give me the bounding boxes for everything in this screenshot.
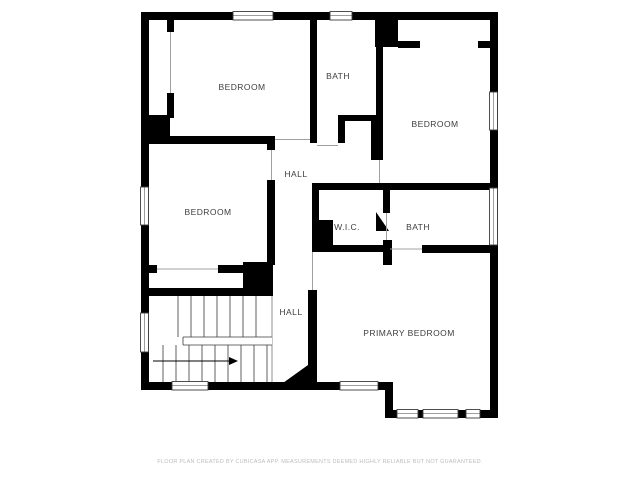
room-label-bedroom-top-right: BEDROOM bbox=[411, 119, 458, 129]
room-label-hall-lower: HALL bbox=[279, 307, 302, 317]
room-label-primary-bedroom: PRIMARY BEDROOM bbox=[363, 328, 454, 338]
room-label-hall-upper: HALL bbox=[284, 169, 307, 179]
room-label-bedroom-left: BEDROOM bbox=[184, 207, 231, 217]
footer-disclaimer: FLOOR PLAN CREATED BY CUBICASA APP. MEAS… bbox=[157, 459, 482, 465]
floor-plan-svg bbox=[0, 0, 640, 480]
floor-plan-canvas: BEDROOM BATH BEDROOM HALL BEDROOM W.I.C.… bbox=[0, 0, 640, 480]
room-label-bedroom-top-left: BEDROOM bbox=[218, 82, 265, 92]
stair-direction-arrow-icon bbox=[153, 357, 238, 365]
room-label-bath-top: BATH bbox=[326, 71, 350, 81]
staircase bbox=[163, 296, 272, 382]
room-label-wic: W.I.C. bbox=[334, 222, 360, 232]
room-label-bath-right: BATH bbox=[406, 222, 430, 232]
